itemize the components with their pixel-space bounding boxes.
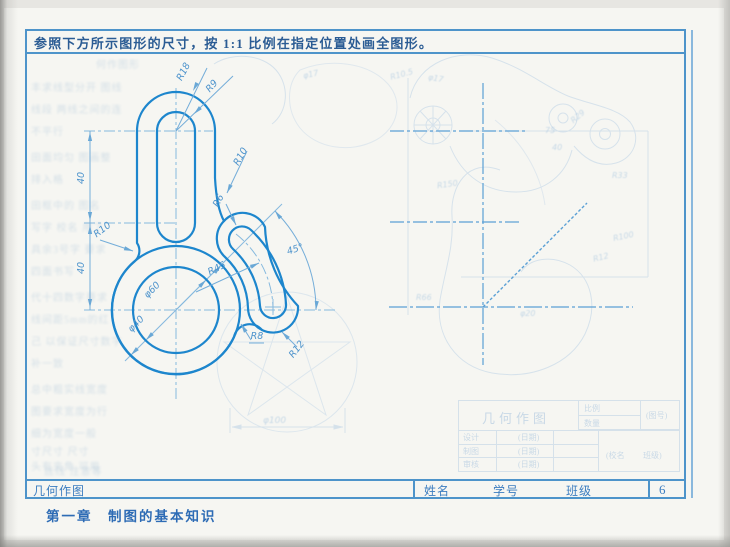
- part-outline: [112, 92, 298, 374]
- footer-title: 几何作图: [33, 482, 85, 499]
- dim-r6: R6: [211, 193, 227, 209]
- name-label: 姓名: [424, 482, 450, 499]
- dim-40-bottom: 40: [76, 262, 87, 274]
- dim-r45: R45: [206, 260, 228, 278]
- class-label: 班级: [566, 482, 592, 499]
- dim-r10-right: R10: [231, 146, 250, 168]
- instruction-divider: [25, 52, 686, 54]
- dimension-lines: [90, 68, 316, 347]
- chapter-title: 第一章 制图的基本知识: [46, 505, 217, 525]
- page-number: 6: [659, 482, 666, 498]
- dim-r18: R18: [175, 61, 193, 83]
- dim-d60: φ60: [142, 280, 163, 301]
- frame-double-line: [691, 30, 693, 498]
- dimension-arrows: [88, 82, 319, 356]
- dim-45deg: 45°: [286, 242, 305, 258]
- dim-r8: R8: [251, 331, 264, 342]
- dim-40-top: 40: [76, 172, 87, 184]
- scanned-workbook-page: { "page": { "instruction": "参照下方所示图形的尺寸，…: [0, 0, 730, 547]
- showthrough-titleblock: 几何作图 比例 数量 (图号) 设计 (日期) 制图 (日期) 审核 (日期) …: [458, 400, 680, 472]
- dim-d40: φ40: [126, 314, 147, 335]
- footer-cell-divider-1: [413, 480, 415, 499]
- dim-r9: R9: [204, 78, 221, 95]
- student-id-label: 学号: [493, 482, 519, 499]
- footer-divider: [25, 479, 686, 481]
- footer-cell-divider-2: [648, 480, 650, 499]
- instruction-text: 参照下方所示图形的尺寸，按 1:1 比例在指定位置处画全图形。: [34, 33, 433, 52]
- diagonal-45-line: [483, 203, 587, 307]
